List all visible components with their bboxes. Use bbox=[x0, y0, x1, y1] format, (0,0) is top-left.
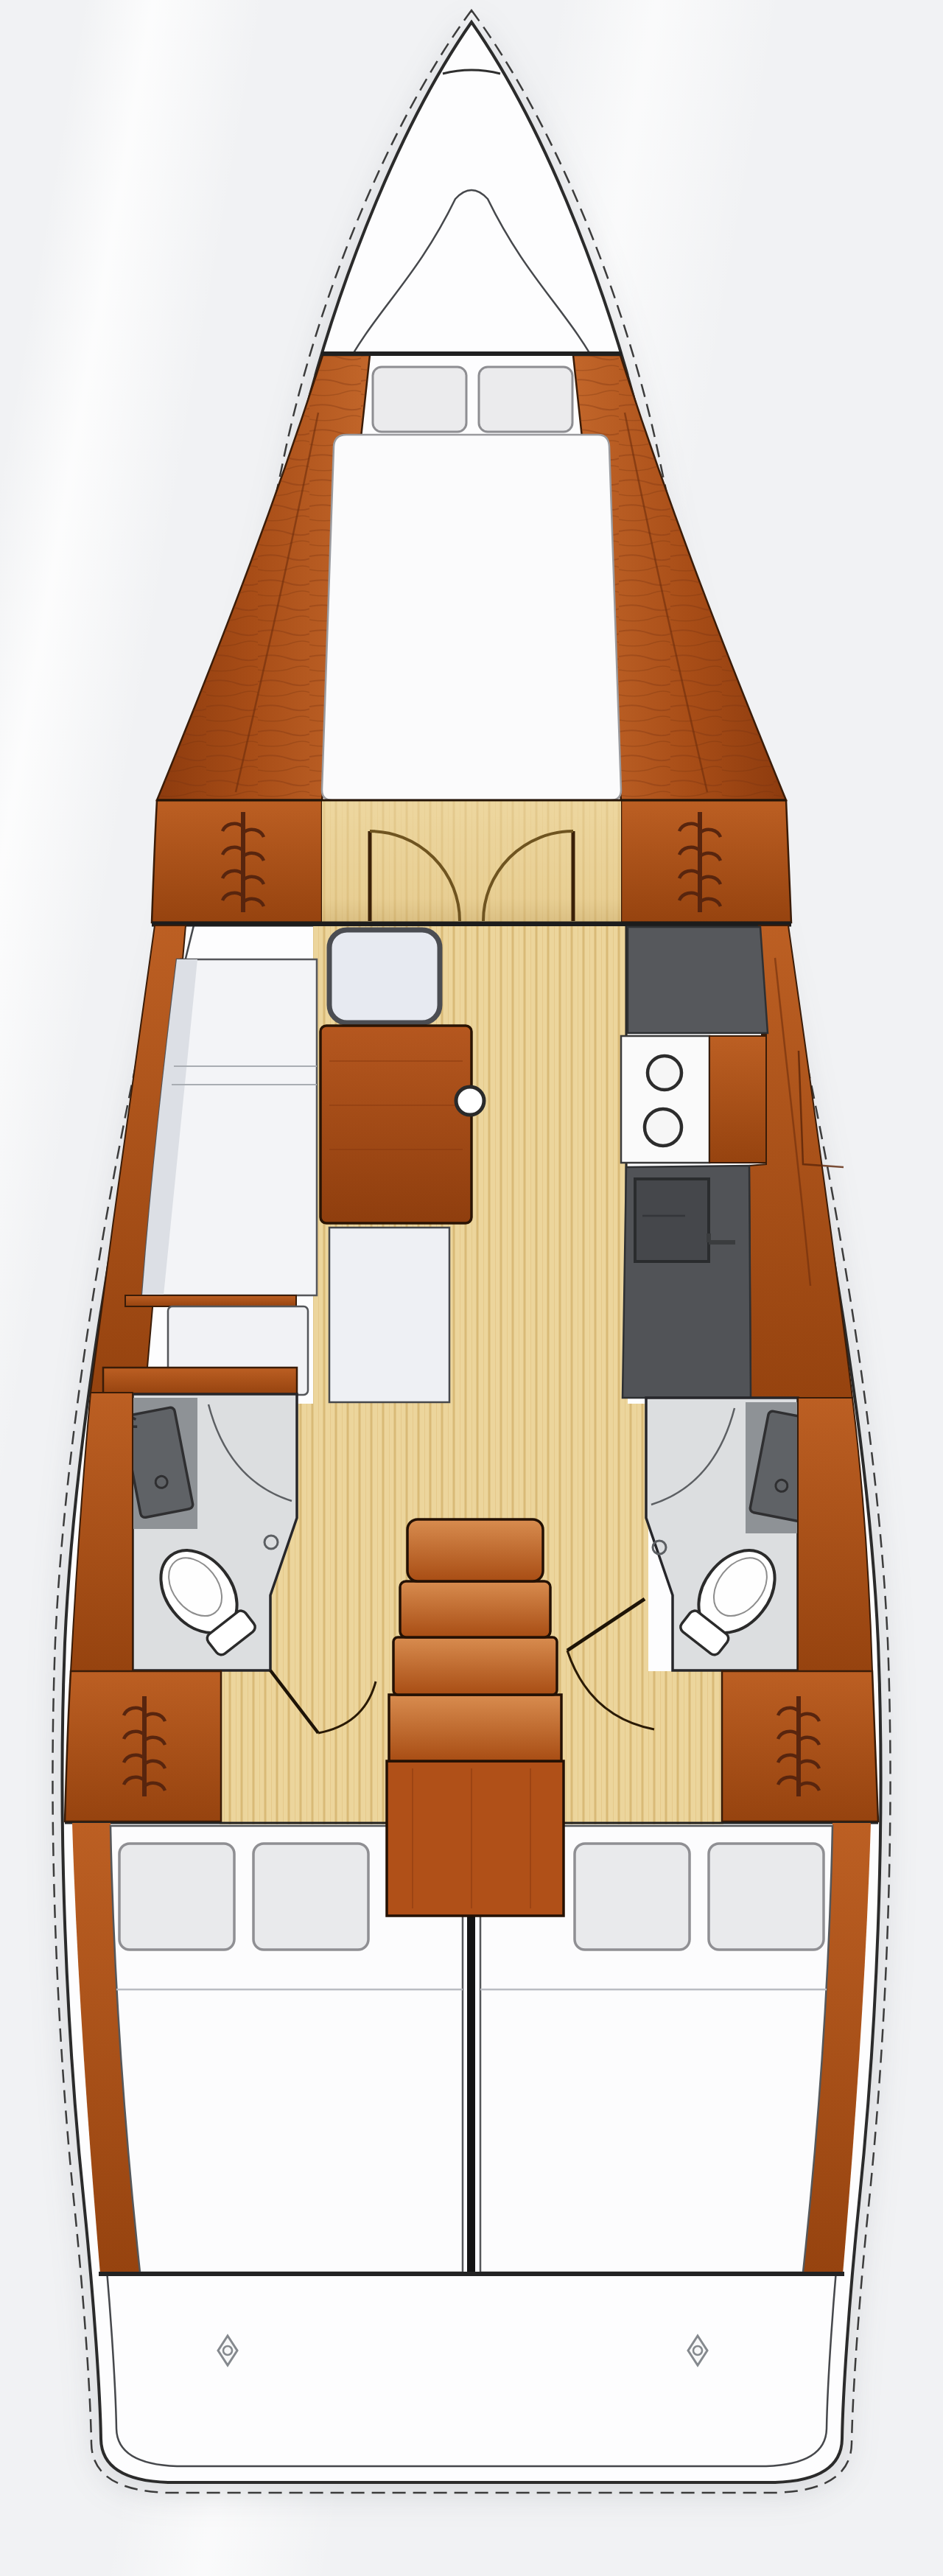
galley-wood-sliver bbox=[709, 1036, 766, 1163]
hanging-locker-port-fwd bbox=[152, 800, 322, 923]
v-berth-mattress bbox=[322, 435, 621, 800]
aft-pillow bbox=[575, 1844, 690, 1950]
stair-step bbox=[407, 1519, 543, 1581]
galley-counter-top bbox=[628, 927, 768, 1033]
galley bbox=[621, 926, 768, 1398]
companionway-stairs bbox=[387, 1519, 564, 1916]
table-seat bbox=[329, 1228, 449, 1402]
stair-step bbox=[389, 1695, 561, 1761]
stove-burner-icon bbox=[645, 1109, 681, 1146]
stove-burner-icon bbox=[648, 1056, 681, 1090]
berth-divider-wall bbox=[467, 1912, 475, 2275]
settee-corner-wood-trim bbox=[125, 1295, 296, 1306]
aft-pillow bbox=[709, 1844, 824, 1950]
chart-seat bbox=[329, 930, 440, 1023]
forward-locker-band bbox=[152, 800, 791, 924]
saloon-table-knob bbox=[456, 1087, 484, 1115]
saloon-table bbox=[320, 1026, 471, 1223]
boat-floor-plan bbox=[0, 0, 943, 2576]
port-head-top-wall bbox=[103, 1368, 297, 1394]
stair-step bbox=[400, 1581, 550, 1637]
stair-step bbox=[393, 1637, 557, 1695]
hanging-locker-starboard-fwd bbox=[621, 800, 791, 923]
aft-pillow bbox=[253, 1844, 368, 1950]
aft-pillow bbox=[119, 1844, 234, 1950]
galley-sink bbox=[635, 1179, 709, 1261]
v-berth-pillow-starboard bbox=[479, 367, 572, 432]
v-berth-pillow-port bbox=[373, 367, 466, 432]
